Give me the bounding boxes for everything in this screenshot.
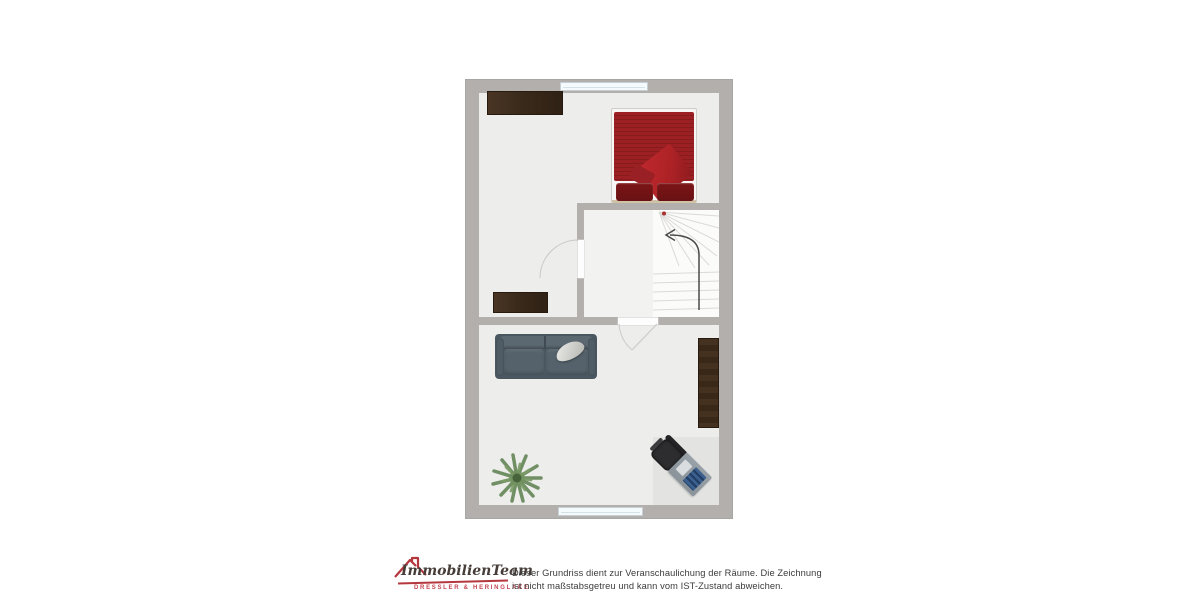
- stair-start-dot: [662, 212, 666, 216]
- wall-right: [719, 80, 732, 518]
- wall-bedroom-stairs: [577, 203, 732, 210]
- double-bed-icon: [611, 108, 697, 203]
- floor-plan: [466, 80, 732, 518]
- brand-underline: [398, 580, 508, 585]
- disclaimer-text: Dieser Grundriss dient zur Veranschaulic…: [512, 567, 822, 592]
- door-swing-bedroom: [538, 238, 580, 280]
- bed-pillow-left: [616, 183, 653, 201]
- wall-stairhall-upper: [577, 203, 584, 241]
- bed-pillow-right: [657, 183, 694, 201]
- disclaimer-line-2: ist nicht maßstabsgetreu und kann vom IS…: [512, 580, 822, 593]
- tall-wardrobe-icon: [698, 338, 719, 428]
- company-logo: ImmobilienTeam DRESSLER & HERINGLAKE: [393, 556, 513, 596]
- wall-living-left: [466, 317, 618, 325]
- wardrobe-icon: [487, 91, 563, 115]
- window-bottom: [558, 507, 643, 516]
- sofa-icon: [495, 334, 597, 379]
- disclaimer-line-1: Dieser Grundriss dient zur Veranschaulic…: [512, 567, 822, 580]
- stairs-icon: [653, 210, 719, 317]
- plant-icon: [489, 452, 545, 504]
- wall-living-right: [658, 317, 732, 325]
- window-top: [560, 82, 648, 91]
- wall-left: [466, 80, 479, 518]
- door-swing-living: [616, 323, 662, 357]
- dresser-icon: [493, 292, 548, 313]
